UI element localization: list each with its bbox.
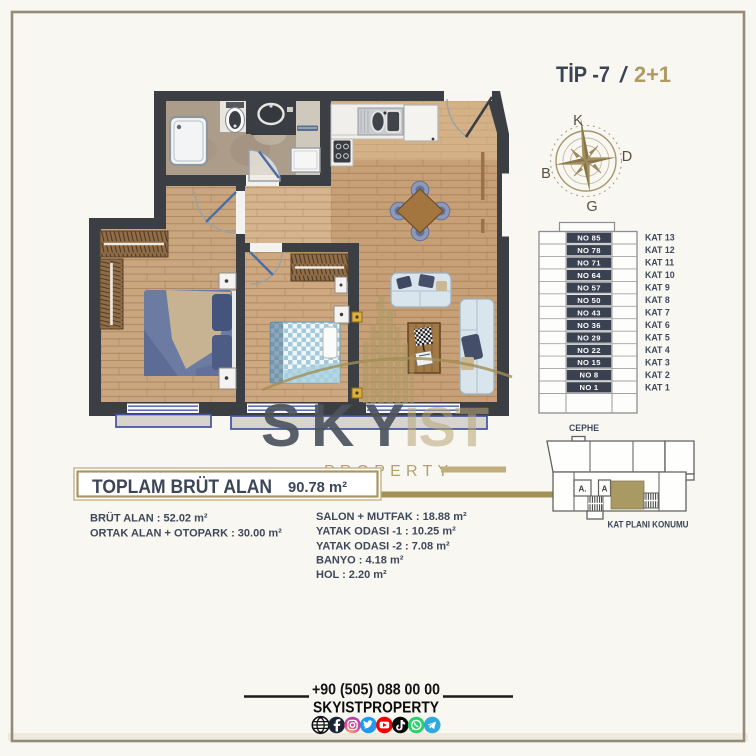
svg-text:KAT 13: KAT 13 bbox=[645, 233, 675, 243]
svg-text:NO 15: NO 15 bbox=[577, 358, 601, 367]
svg-text:NO 71: NO 71 bbox=[577, 259, 601, 268]
svg-text:NO 29: NO 29 bbox=[577, 333, 600, 342]
svg-text:NO 8: NO 8 bbox=[580, 371, 599, 380]
svg-text:NO 1: NO 1 bbox=[580, 383, 599, 392]
svg-text:G: G bbox=[586, 199, 597, 215]
svg-text:TOPLAM BRÜT ALAN: TOPLAM BRÜT ALAN bbox=[92, 475, 272, 498]
svg-text:BANYO : 4.18 m²: BANYO : 4.18 m² bbox=[316, 555, 404, 567]
svg-text:HOL : 2.20 m²: HOL : 2.20 m² bbox=[316, 569, 387, 581]
svg-text:SKYISTPROPERTY: SKYISTPROPERTY bbox=[313, 700, 440, 717]
svg-text:KAT 1: KAT 1 bbox=[645, 382, 670, 392]
svg-text:KAT 2: KAT 2 bbox=[645, 370, 670, 380]
svg-text:K: K bbox=[573, 113, 583, 129]
svg-text:SKY: SKY bbox=[261, 392, 414, 459]
svg-text:NO 57: NO 57 bbox=[577, 283, 600, 292]
svg-text:+90 (505) 088 00 00: +90 (505) 088 00 00 bbox=[312, 682, 440, 699]
svg-text:KAT 4: KAT 4 bbox=[645, 345, 670, 355]
svg-text:KAT 5: KAT 5 bbox=[645, 333, 670, 343]
svg-text:YATAK ODASI -2 : 7.08 m²: YATAK ODASI -2 : 7.08 m² bbox=[316, 541, 450, 553]
svg-text:YATAK ODASI -1 : 10.25 m²: YATAK ODASI -1 : 10.25 m² bbox=[316, 526, 456, 538]
svg-text:KAT 12: KAT 12 bbox=[645, 245, 675, 255]
svg-text:A.: A. bbox=[579, 485, 587, 494]
svg-text:NO 85: NO 85 bbox=[577, 234, 601, 243]
svg-text:IST: IST bbox=[404, 395, 489, 458]
svg-text:A: A bbox=[602, 485, 608, 494]
svg-text:ORTAK ALAN + OTOPARK : 30.00 m: ORTAK ALAN + OTOPARK : 30.00 m² bbox=[90, 528, 282, 540]
svg-text:NO 78: NO 78 bbox=[577, 246, 600, 255]
svg-text:KAT 6: KAT 6 bbox=[645, 320, 670, 330]
svg-text:NO 50: NO 50 bbox=[577, 296, 600, 305]
svg-text:KAT 9: KAT 9 bbox=[645, 283, 670, 293]
svg-text:KAT 3: KAT 3 bbox=[645, 357, 670, 367]
svg-text:2+1: 2+1 bbox=[634, 62, 671, 87]
svg-text:90.78 m²: 90.78 m² bbox=[288, 479, 347, 496]
svg-text:NO 64: NO 64 bbox=[577, 271, 601, 280]
svg-text:KAT 8: KAT 8 bbox=[645, 295, 670, 305]
svg-text:NO 36: NO 36 bbox=[577, 321, 600, 330]
svg-text:KAT PLANI KONUMU: KAT PLANI KONUMU bbox=[608, 519, 689, 530]
svg-text:KAT 10: KAT 10 bbox=[645, 270, 675, 280]
svg-text:KAT 7: KAT 7 bbox=[645, 308, 670, 318]
svg-text:D: D bbox=[622, 149, 632, 165]
svg-text:KAT 11: KAT 11 bbox=[645, 258, 674, 268]
svg-text:B: B bbox=[541, 166, 551, 182]
svg-text:SALON + MUTFAK : 18.88 m²: SALON + MUTFAK : 18.88 m² bbox=[316, 511, 467, 523]
svg-text:TİP -7: TİP -7 bbox=[556, 62, 610, 87]
svg-text:CEPHE: CEPHE bbox=[569, 423, 599, 433]
svg-text:BRÜT ALAN : 52.02 m²: BRÜT ALAN : 52.02 m² bbox=[90, 512, 208, 525]
svg-text:NO 43: NO 43 bbox=[577, 308, 600, 317]
svg-text:NO 22: NO 22 bbox=[577, 346, 600, 355]
